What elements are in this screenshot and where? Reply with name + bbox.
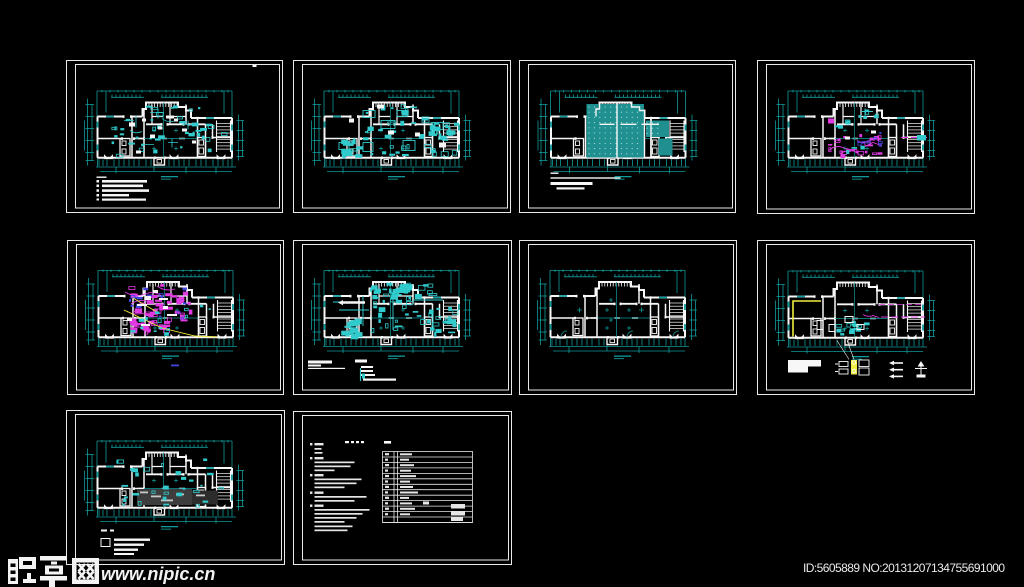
svg-text:www.nipic.cn: www.nipic.cn — [101, 564, 215, 584]
